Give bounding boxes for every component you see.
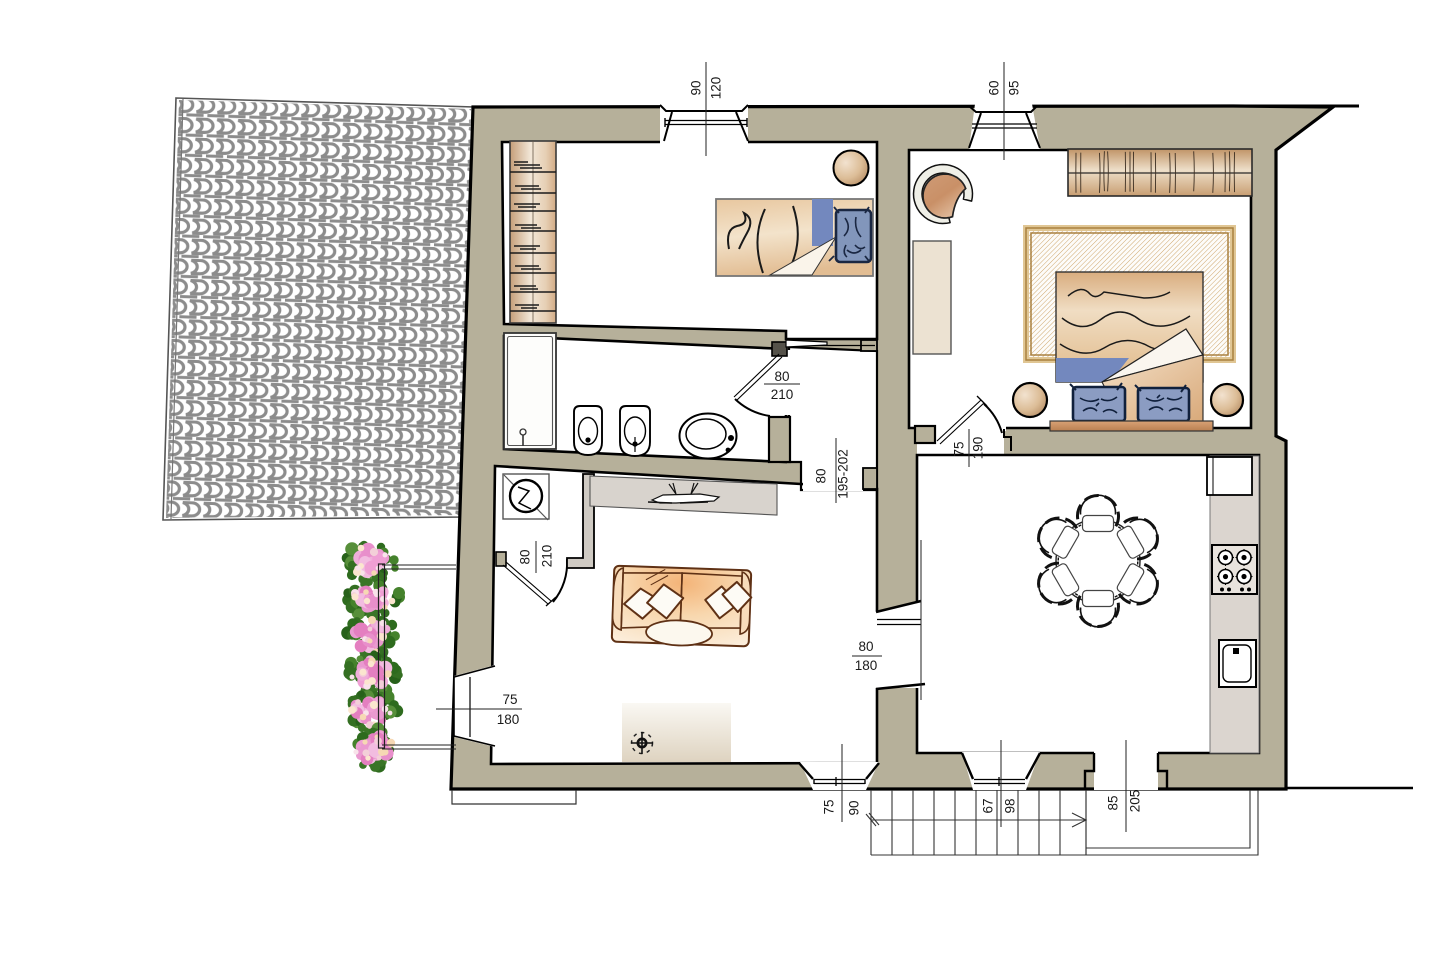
svg-text:205: 205 [1128, 790, 1143, 813]
svg-text:85: 85 [1106, 795, 1121, 810]
svg-text:75: 75 [502, 692, 517, 707]
svg-text:90: 90 [689, 80, 704, 95]
svg-text:210: 210 [771, 387, 794, 402]
svg-text:75: 75 [822, 799, 837, 814]
svg-text:180: 180 [497, 712, 520, 727]
svg-text:120: 120 [709, 77, 724, 100]
svg-text:90: 90 [847, 800, 862, 815]
svg-text:60: 60 [987, 80, 1002, 95]
svg-text:80: 80 [858, 639, 873, 654]
svg-text:80: 80 [814, 468, 829, 483]
svg-text:80: 80 [518, 549, 533, 564]
svg-text:80: 80 [774, 369, 789, 384]
svg-text:180: 180 [855, 658, 878, 673]
svg-text:210: 210 [540, 545, 555, 568]
svg-text:195-202: 195-202 [836, 449, 851, 499]
svg-text:98: 98 [1003, 798, 1018, 813]
svg-text:67: 67 [981, 798, 996, 813]
svg-text:95: 95 [1007, 80, 1022, 95]
svg-text:190: 190 [971, 437, 986, 460]
svg-text:75: 75 [952, 441, 967, 456]
